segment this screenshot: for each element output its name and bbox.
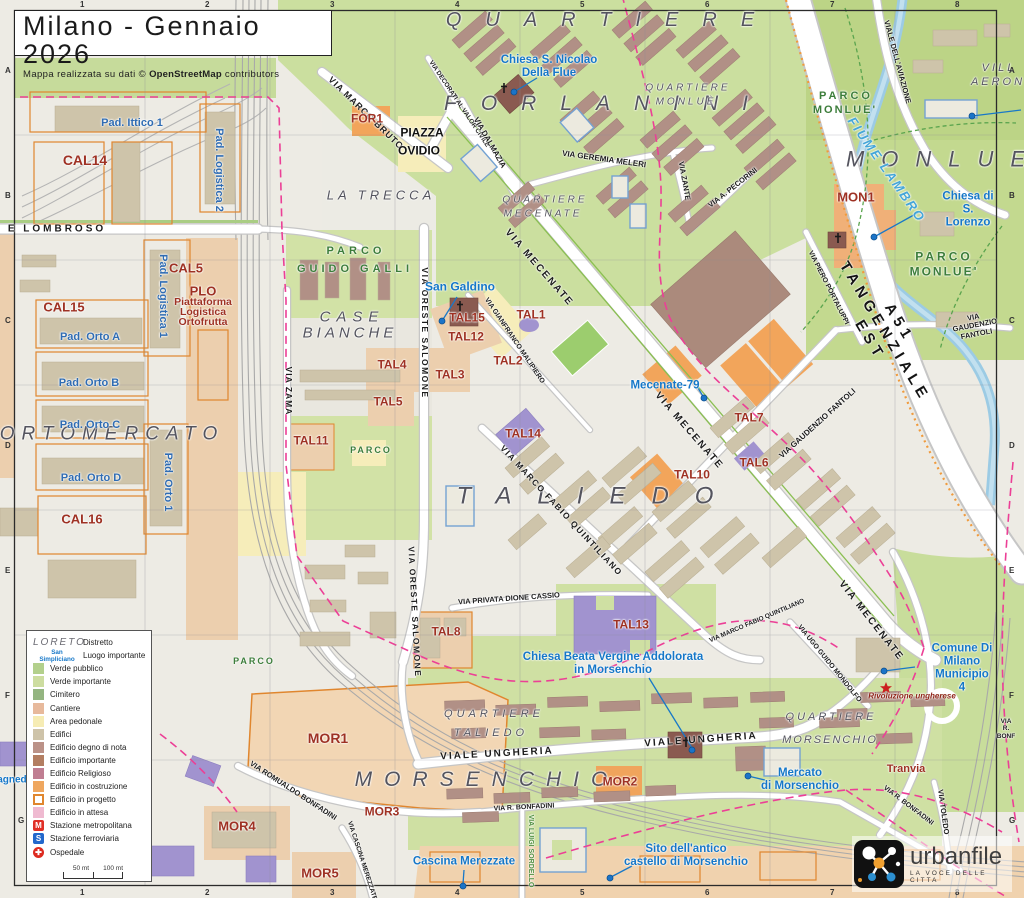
legend-swatch [33, 703, 44, 714]
legend-swatch [33, 663, 44, 674]
legend-row: Cantiere [33, 701, 147, 714]
legend-row: Area pedonale [33, 715, 147, 728]
legend-hospital-icon: ✚ [33, 847, 44, 858]
scale-half-label: 50 mt [73, 865, 89, 872]
title-box: Milano - Gennaio 2026 Mappa realizzata s… [14, 10, 332, 56]
legend-row: Edificio in progetto [33, 793, 147, 806]
legend-label: Luogo importante [83, 651, 145, 660]
legend-label: Stazione metropolitana [50, 821, 132, 830]
scale-bar: 50 mt 100 mt [63, 865, 123, 879]
legend-label: Edificio Religioso [50, 769, 111, 778]
legend-label: Verde pubblico [50, 664, 103, 673]
map-title: Milano - Gennaio 2026 [23, 12, 331, 69]
scale-full-label: 100 mt [103, 865, 123, 872]
legend-badge-m-icon: M [33, 820, 44, 831]
legend-row: Verde pubblico [33, 662, 147, 675]
legend-badge-s-icon: S [33, 833, 44, 844]
legend-swatch [33, 676, 44, 687]
legend-place-sample: San Simpliciano [33, 649, 81, 663]
legend-row: Edifici [33, 728, 147, 741]
legend-row: Edificio in attesa [33, 806, 147, 819]
legend-label: Edificio degno di nota [50, 743, 127, 752]
legend-row: SStazione ferroviaria [33, 832, 147, 845]
legend-label: Cantiere [50, 704, 80, 713]
urbanfile-name: urbanfile [910, 845, 1010, 869]
legend-label: Edificio in costruzione [50, 782, 127, 791]
legend-swatch [33, 689, 44, 700]
legend: LORETODistrettoSan SimplicianoLuogo impo… [26, 630, 152, 882]
legend-label: Distretto [83, 638, 113, 647]
legend-label: Edificio importante [50, 756, 116, 765]
legend-label: Ospedale [50, 848, 84, 857]
basemap-graphics [0, 0, 1024, 898]
legend-swatch [33, 768, 44, 779]
legend-label: Edificio in progetto [50, 795, 116, 804]
legend-swatch [33, 755, 44, 766]
legend-row: Edificio degno di nota [33, 741, 147, 754]
legend-swatch [33, 794, 44, 805]
legend-row: Edificio importante [33, 754, 147, 767]
legend-row: LORETODistretto [33, 636, 147, 649]
legend-row: MStazione metropolitana [33, 819, 147, 832]
urbanfile-tagline: LA VOCE DELLE CITTA [910, 870, 1010, 884]
legend-row: ✚Ospedale [33, 846, 147, 859]
legend-row: San SimplicianoLuogo importante [33, 649, 147, 662]
legend-row: Verde importante [33, 675, 147, 688]
legend-rows: LORETODistrettoSan SimplicianoLuogo impo… [33, 636, 147, 859]
legend-swatch [33, 742, 44, 753]
legend-swatch [33, 716, 44, 727]
legend-swatch [33, 729, 44, 740]
legend-label: Cimitero [50, 690, 80, 699]
map-subtitle: Mappa realizzata su dati © OpenStreetMap… [23, 69, 331, 80]
legend-label: Area pedonale [50, 717, 102, 726]
urbanfile-logo-icon [854, 840, 904, 888]
legend-row: Cimitero [33, 688, 147, 701]
map-canvas: QUARTIEREFORLANINIMONLUEORTOMERCATOCASEB… [0, 0, 1024, 898]
legend-label: Edificio in attesa [50, 808, 108, 817]
legend-swatch [33, 807, 44, 818]
legend-label: Edifici [50, 730, 71, 739]
legend-label: Stazione ferroviaria [50, 834, 119, 843]
urbanfile-logo: urbanfile LA VOCE DELLE CITTA [852, 836, 1012, 892]
legend-district-sample: LORETO [33, 637, 81, 648]
legend-row: Edificio in costruzione [33, 780, 147, 793]
legend-swatch [33, 781, 44, 792]
legend-label: Verde importante [50, 677, 111, 686]
legend-row: Edificio Religioso [33, 767, 147, 780]
